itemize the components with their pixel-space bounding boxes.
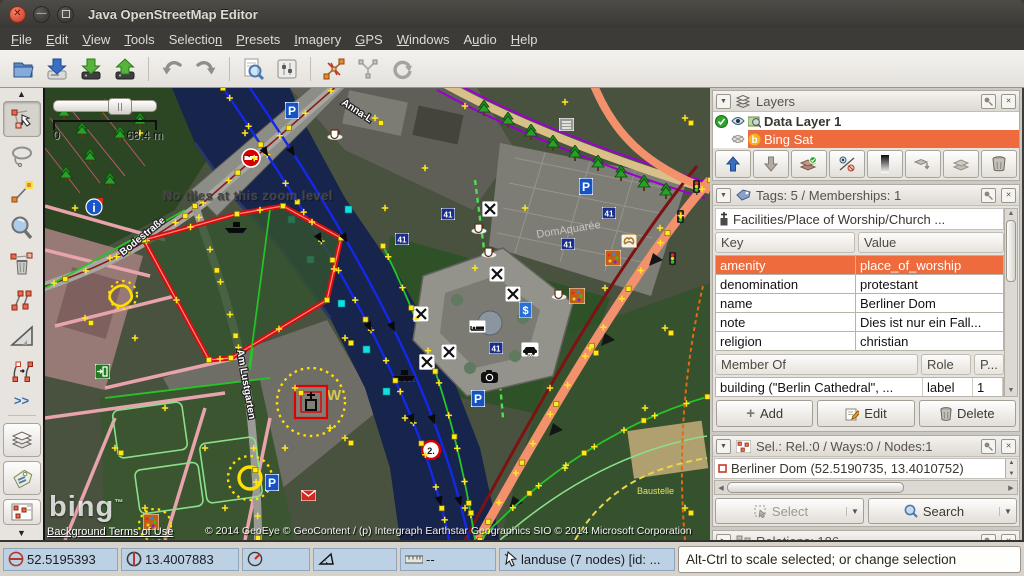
selection-icon — [736, 440, 751, 453]
traffic-light-icon — [693, 180, 700, 195]
unglue-icon — [9, 287, 35, 313]
menu-edit[interactable]: Edit — [39, 30, 75, 49]
preferences-icon — [275, 57, 299, 81]
close-panel-icon[interactable]: ✕ — [1001, 188, 1016, 203]
scroll-down-icon[interactable]: ▼ — [17, 527, 26, 539]
search-doc-icon — [241, 57, 265, 81]
preferences-button[interactable] — [270, 53, 304, 84]
menu-gps[interactable]: GPS — [348, 30, 389, 49]
svg-text:b: b — [751, 135, 757, 146]
scroll-left-icon[interactable]: ◀ — [715, 484, 727, 492]
preset-row[interactable]: Facilities/Place of Worship/Church ... — [715, 208, 1004, 230]
longitude-value: 13.4007883 — [145, 552, 214, 567]
open-folder-icon — [11, 57, 35, 81]
redo-icon — [194, 57, 218, 81]
edit-toolbar: ▲ >> — [0, 88, 45, 540]
zoom-tool[interactable] — [4, 211, 40, 245]
bank-icon — [519, 302, 532, 318]
selection-panel-title: Sel.: Rel.:0 / Ways:0 / Nodes:1 — [756, 439, 976, 454]
toolbar-separator — [310, 57, 311, 81]
selection-panel-toggle[interactable] — [3, 499, 41, 525]
layers-icon — [736, 95, 751, 108]
improve-accuracy-tool[interactable] — [4, 319, 40, 353]
object-info-value: landuse (7 nodes) [id: ... — [521, 552, 660, 567]
tag-value: Dies ist nur ein Fall... — [856, 313, 1003, 331]
ref-badge — [489, 342, 503, 354]
pin-icon[interactable] — [981, 439, 996, 454]
split-way-button[interactable] — [317, 53, 351, 84]
toolbar-separator — [148, 57, 149, 81]
upload-green-icon — [113, 57, 137, 81]
scrollbar-thumb[interactable] — [1006, 220, 1016, 282]
select-move-tool[interactable] — [3, 101, 41, 137]
improve-way-icon — [9, 323, 35, 349]
menu-presets[interactable]: Presets — [229, 30, 287, 49]
layers-icon — [10, 428, 34, 452]
scroll-up-icon[interactable]: ▲ — [17, 88, 26, 100]
bakery-icon — [621, 234, 637, 248]
restaurant-icon — [505, 286, 521, 302]
toolbar-separator — [229, 57, 230, 81]
watermark-w: W — [327, 387, 342, 404]
download-osm-button[interactable] — [40, 53, 74, 84]
value-column-header[interactable]: Value — [858, 232, 1004, 253]
tag-row-amenity[interactable]: amenityplace_of_worship — [716, 256, 1003, 275]
tag-row-name[interactable]: nameBerliner Dom — [716, 294, 1003, 313]
delete-trash-icon — [9, 251, 35, 277]
statusbar-hint: Alt-Ctrl to scale selected; or change se… — [678, 546, 1021, 573]
collapse-icon[interactable]: ▼ — [716, 94, 731, 109]
dim-layers-button[interactable] — [943, 150, 979, 178]
ref-badge — [441, 208, 455, 220]
main-area: ▲ >> — [0, 88, 1024, 540]
menu-imagery[interactable]: Imagery — [287, 30, 348, 49]
hotel-icon — [469, 320, 486, 333]
undo-button[interactable] — [155, 53, 189, 84]
eye-icon[interactable] — [731, 116, 745, 126]
latitude-icon — [8, 551, 24, 567]
delete-tool[interactable] — [4, 247, 40, 281]
search-icon — [904, 504, 918, 518]
tag-value: christian — [856, 332, 1003, 350]
membership-position: 1 — [973, 378, 1003, 396]
tag-key: note — [716, 313, 856, 331]
tag-icon — [10, 466, 34, 490]
terms-of-use-link[interactable]: Background Terms of Use — [47, 526, 173, 538]
market-icon — [605, 250, 621, 266]
role-header[interactable]: Role — [921, 354, 971, 375]
parallel-way-icon — [9, 359, 35, 385]
main-toolbar — [0, 50, 1024, 88]
delete-layer-button[interactable] — [981, 150, 1017, 178]
tags-body: Facilities/Place of Worship/Church ... K… — [713, 206, 1019, 431]
preset-label: Facilities/Place of Worship/Church ... — [733, 212, 945, 227]
longitude-icon — [126, 551, 142, 567]
collapse-icon[interactable]: ▼ — [716, 439, 731, 454]
pin-icon[interactable] — [981, 188, 996, 203]
heading-field[interactable] — [242, 548, 310, 571]
layer-row-data[interactable]: Data Layer 1 — [713, 112, 1019, 130]
menu-tools[interactable]: Tools — [117, 30, 161, 49]
tag-key: religion — [716, 332, 856, 350]
tags-panel-title: Tags: 5 / Memberships: 1 — [756, 188, 976, 203]
menu-windows[interactable]: Windows — [390, 30, 457, 49]
restaurant-icon — [489, 266, 505, 282]
download-data-icon — [45, 57, 69, 81]
refresh-icon — [390, 57, 414, 81]
eye-off-icon[interactable] — [731, 134, 745, 144]
split-way-icon — [322, 57, 346, 81]
tag-key: name — [716, 294, 856, 312]
ruler-icon — [405, 554, 423, 564]
map-canvas: P $ TAXI i 2. 41 — [45, 88, 710, 540]
open-file-button[interactable] — [6, 53, 40, 84]
combine-way-icon — [356, 57, 380, 81]
restaurant-icon — [419, 354, 435, 370]
download-green-icon — [79, 57, 103, 81]
collapse-icon[interactable]: ▼ — [716, 188, 731, 203]
menu-view[interactable]: View — [75, 30, 117, 49]
select-button[interactable]: Select ▼ — [715, 498, 864, 524]
scroll-down-icon[interactable]: ▼ — [1008, 386, 1015, 396]
layers-toolbar — [713, 148, 1019, 180]
object-info-field[interactable]: landuse (7 nodes) [id: ... — [499, 548, 675, 571]
tags-panel-toggle[interactable] — [3, 461, 41, 495]
longitude-field[interactable]: 13.4007883 — [121, 548, 239, 571]
draw-node-icon — [9, 179, 35, 205]
latitude-value: 52.5195393 — [27, 552, 96, 567]
tag-row-denomination[interactable]: denominationprotestant — [716, 275, 1003, 294]
trash-icon — [940, 407, 952, 421]
membership-relation: building ("Berlin Cathedral", ... — [716, 378, 923, 396]
tag-value: place_of_worship — [856, 256, 1003, 274]
tag-row-note[interactable]: noteDies ist nur ein Fall... — [716, 313, 1003, 332]
info-icon — [86, 198, 103, 215]
selection-scrollbar-vertical[interactable]: ▲▼ — [1005, 459, 1017, 478]
tags-scrollbar[interactable]: ▲ ▼ — [1004, 208, 1018, 397]
close-panel-icon[interactable]: ✕ — [1001, 94, 1016, 109]
edit-pencil-icon — [845, 407, 859, 421]
distance-field[interactable]: -- — [400, 548, 496, 571]
membership-header: Member Of Role P... — [715, 354, 1004, 375]
layers-panel-header: ▼ Layers ✕ — [713, 91, 1019, 112]
parking-icon — [579, 178, 593, 195]
bing-icon: b — [748, 133, 761, 146]
redo-button[interactable] — [189, 53, 223, 84]
selection-panel-header: ▼ Sel.: Rel.:0 / Ways:0 / Nodes:1 ✕ — [713, 436, 1019, 457]
zoom-slider-handle[interactable] — [108, 98, 132, 115]
latitude-field[interactable]: 52.5195393 — [3, 548, 118, 571]
tag-key: denomination — [716, 275, 856, 293]
layer-name: Bing Sat — [764, 132, 813, 147]
menu-file[interactable]: File — [4, 30, 39, 49]
post-box-icon — [301, 490, 316, 501]
toggle-visibility-button[interactable] — [829, 150, 865, 178]
tag-buttons: +Add Edit Delete — [714, 397, 1018, 430]
select-hand-icon — [9, 106, 35, 132]
node-marker-icon — [718, 464, 727, 473]
heading-icon — [247, 551, 263, 567]
window-title: Java OpenStreetMap Editor — [88, 7, 258, 22]
selection-buttons: Select ▼ Search ▼ — [713, 496, 1019, 526]
data-layer-icon — [748, 115, 761, 128]
maximize-icon[interactable] — [57, 6, 74, 23]
active-check-icon[interactable] — [715, 115, 728, 128]
selection-scrollbar-horizontal[interactable]: ◀ ▶ — [714, 480, 1018, 495]
park-entrance-icon — [95, 364, 110, 379]
tags-panel: ▼ Tags: 5 / Memberships: 1 ✕ Facilities/… — [712, 184, 1020, 432]
duplicate-layer-button[interactable] — [905, 150, 941, 178]
cursor-icon — [504, 551, 518, 567]
move-layer-up-button[interactable] — [715, 150, 751, 178]
dropdown-caret[interactable]: ▼ — [846, 507, 863, 516]
more-tools-button[interactable]: >> — [14, 390, 29, 410]
draw-nodes-tool[interactable] — [4, 175, 40, 209]
opacity-button[interactable] — [867, 150, 903, 178]
taxi-icon — [521, 342, 539, 358]
close-panel-icon[interactable]: ✕ — [1001, 439, 1016, 454]
minimize-icon[interactable]: — — [33, 6, 50, 23]
download-button[interactable] — [74, 53, 108, 84]
tag-value: Berliner Dom — [856, 294, 1003, 312]
scroll-right-icon[interactable]: ▶ — [1005, 484, 1017, 492]
unglue-tool[interactable] — [4, 283, 40, 317]
toilets-icon — [559, 118, 574, 131]
edit-tag-button[interactable]: Edit — [817, 400, 914, 427]
position-header[interactable]: P... — [974, 354, 1004, 375]
menubar: FileEditViewToolsSelectionPresetsImagery… — [0, 28, 1024, 50]
search-button[interactable] — [236, 53, 270, 84]
parallel-way-tool[interactable] — [4, 355, 40, 389]
note-label-baustelle: Baustelle — [637, 486, 674, 496]
restaurant-icon — [441, 344, 457, 360]
toolbar-separator — [8, 415, 36, 416]
tags-panel-header: ▼ Tags: 5 / Memberships: 1 ✕ — [713, 185, 1019, 206]
scroll-up-icon[interactable]: ▲ — [1008, 209, 1015, 219]
parking-icon — [265, 474, 279, 491]
selection-list-icon — [10, 503, 34, 521]
membership-role: label — [923, 378, 973, 396]
refresh-button[interactable] — [385, 53, 419, 84]
restaurant-icon — [482, 201, 498, 217]
zoom-slider[interactable] — [53, 100, 157, 112]
selection-item-label: Berliner Dom (52.5190735, 13.4010752) — [731, 461, 964, 476]
window-controls: ✕ — — [9, 6, 74, 23]
layer-row-bing[interactable]: b Bing Sat — [713, 130, 1019, 148]
undo-icon — [160, 57, 184, 81]
tag-key: amenity — [716, 256, 856, 274]
combine-way-button[interactable] — [351, 53, 385, 84]
ref-badge — [395, 233, 409, 245]
tag-table-body: amenityplace_of_worshipdenominationprote… — [715, 255, 1004, 351]
upload-button[interactable] — [108, 53, 142, 84]
titlebar: ✕ — Java OpenStreetMap Editor — [0, 0, 1024, 28]
lasso-icon — [9, 143, 35, 169]
select-rect-icon — [754, 505, 767, 518]
layers-panel-title: Layers — [756, 94, 976, 109]
member-of-header[interactable]: Member Of — [715, 354, 918, 375]
parking-icon — [285, 102, 299, 119]
magnifier-icon — [9, 215, 35, 241]
menu-audio[interactable]: Audio — [456, 30, 503, 49]
layer-name: Data Layer 1 — [764, 114, 841, 129]
merge-layer-button[interactable] — [791, 150, 827, 178]
ref-badge — [602, 207, 616, 219]
selection-panel: ▼ Sel.: Rel.:0 / Ways:0 / Nodes:1 ✕ Berl… — [712, 435, 1020, 527]
move-layer-down-button[interactable] — [753, 150, 789, 178]
tag-table-header: Key Value — [715, 232, 1004, 253]
add-tag-button[interactable]: +Add — [716, 400, 813, 427]
market-icon — [569, 288, 585, 304]
selection-list-item[interactable]: Berliner Dom (52.5190735, 13.4010752) ▲▼ — [714, 458, 1018, 479]
pin-icon[interactable] — [981, 94, 996, 109]
dock-panels: ▼ Layers ✕ Data Layer 1 b Bing Sat — [710, 88, 1022, 540]
josm-window: { "window": {"title": "Java OpenStreetMa… — [0, 0, 1024, 576]
map-view[interactable]: P $ TAXI i 2. 41 — [45, 88, 710, 540]
lasso-tool[interactable] — [4, 139, 40, 173]
layers-panel: ▼ Layers ✕ Data Layer 1 b Bing Sat — [712, 90, 1020, 181]
close-icon[interactable]: ✕ — [9, 6, 26, 23]
statusbar: 52.5195393 13.4007883 -- landuse (7 node… — [0, 540, 1024, 576]
key-column-header[interactable]: Key — [715, 232, 855, 253]
tag-value: protestant — [856, 275, 1003, 293]
dropdown-caret[interactable]: ▼ — [999, 507, 1016, 516]
angle-icon — [318, 552, 335, 566]
layers-panel-toggle[interactable] — [3, 423, 41, 457]
angle-field[interactable] — [313, 548, 397, 571]
ref-badge — [561, 238, 575, 250]
traffic-light-icon — [669, 252, 676, 267]
menu-selection[interactable]: Selection — [162, 30, 229, 49]
church-icon — [719, 212, 729, 226]
parking-icon — [471, 390, 485, 407]
scrollbar-thumb[interactable] — [727, 482, 904, 493]
delete-tag-button[interactable]: Delete — [919, 400, 1016, 427]
tag-icon — [736, 189, 751, 201]
search-button[interactable]: Search ▼ — [868, 498, 1017, 524]
membership-row[interactable]: building ("Berlin Cathedral", ... label … — [715, 377, 1004, 397]
distance-value: -- — [426, 552, 435, 567]
tag-row-religion[interactable]: religionchristian — [716, 332, 1003, 350]
menu-help[interactable]: Help — [504, 30, 545, 49]
